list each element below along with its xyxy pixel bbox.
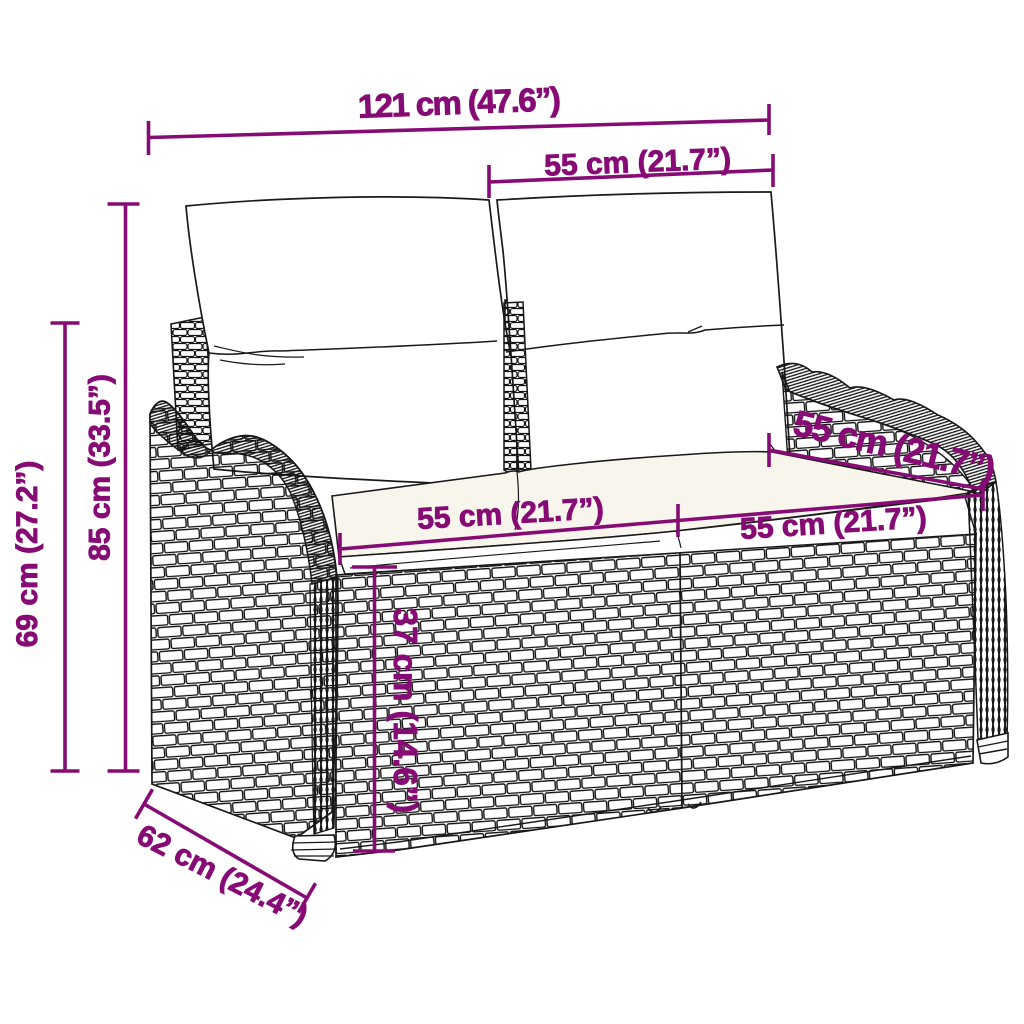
svg-text:69 cm (27.2”): 69 cm (27.2”) [11, 461, 44, 648]
svg-text:55 cm (21.7”): 55 cm (21.7”) [544, 142, 732, 182]
svg-text:37 cm (14.6”): 37 cm (14.6”) [387, 608, 424, 813]
svg-text:62 cm (24.4”): 62 cm (24.4”) [132, 818, 313, 932]
svg-text:85 cm (33.5”): 85 cm (33.5”) [84, 374, 117, 561]
svg-text:121 cm (47.6”): 121 cm (47.6”) [357, 80, 560, 125]
